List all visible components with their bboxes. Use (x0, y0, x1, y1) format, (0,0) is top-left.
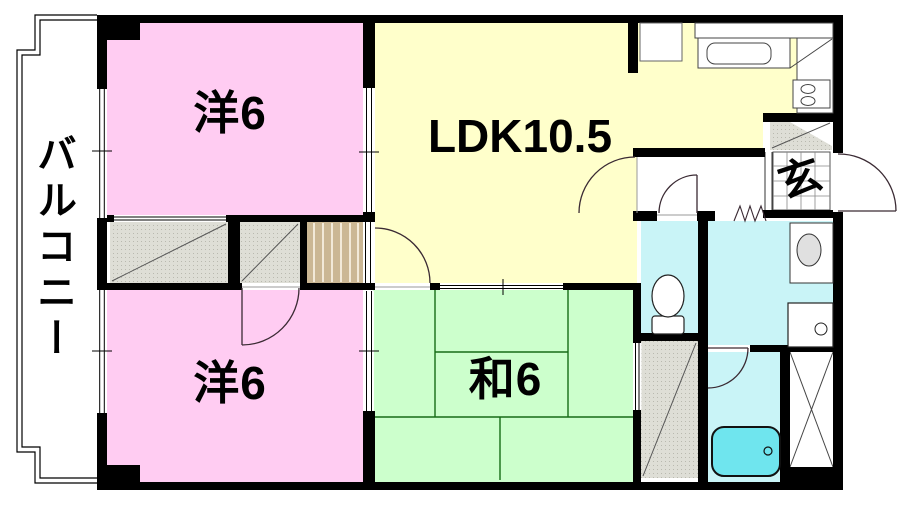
washer-space (788, 303, 833, 347)
floor-plan-drawing (0, 0, 914, 506)
entrance-door-arc (838, 154, 896, 211)
floor-plan: 洋6 LDK10.5 洋6 和6 バルコニー 玄 (0, 0, 914, 506)
kitchen-sink (707, 43, 771, 64)
stove-burner (801, 97, 815, 106)
label-western-room-2: 洋6 (150, 360, 310, 406)
entrance-opening (833, 153, 843, 212)
slider-closet-1 (114, 215, 226, 222)
label-balcony: バルコニー (33, 133, 73, 403)
storage-shelves (307, 222, 363, 283)
label-western-room-1: 洋6 (150, 90, 310, 136)
toilet-fixture (652, 275, 684, 334)
bathtub (712, 427, 780, 476)
washbasin (790, 223, 833, 283)
opening-ldk-storage (363, 222, 374, 283)
label-japanese-room: 和6 (428, 356, 583, 402)
stove-burner (801, 85, 815, 94)
slider-oshiire (634, 343, 642, 410)
refrigerator-space (640, 23, 682, 61)
label-ldk: LDK10.5 (395, 113, 645, 159)
